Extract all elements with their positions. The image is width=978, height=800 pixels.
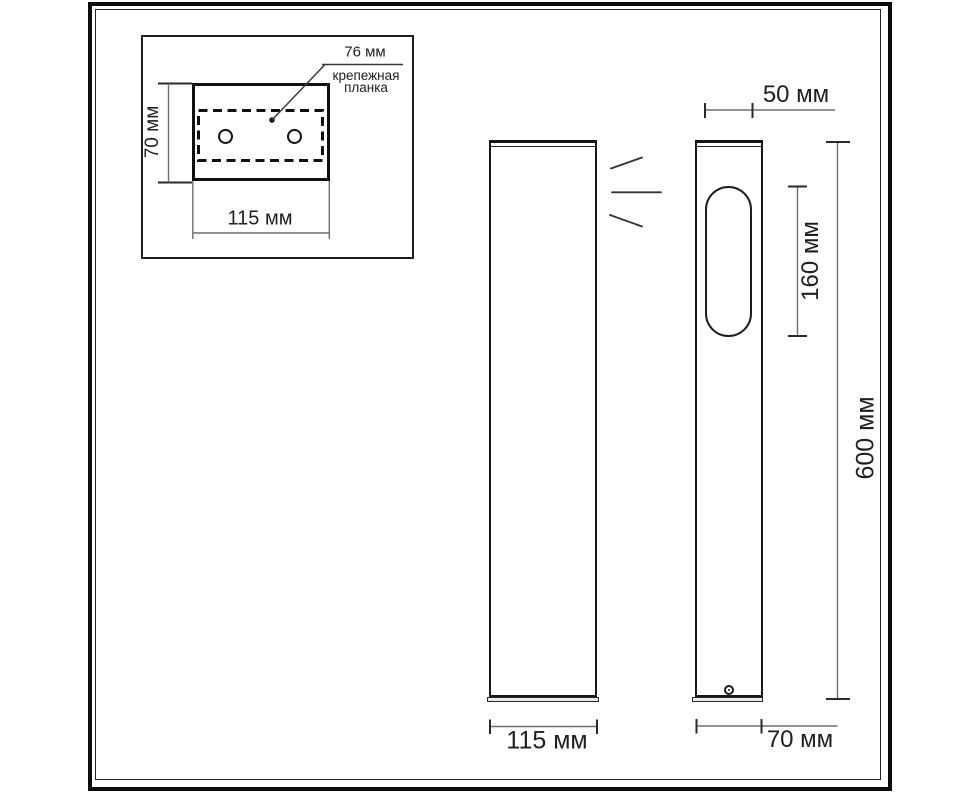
bracket-caption: крепежная планка <box>333 70 400 94</box>
light-ray-bottom <box>610 215 642 227</box>
side-depth-label: 70 мм <box>767 726 833 754</box>
head-depth-label: 50 мм <box>763 81 829 109</box>
bracket-caption-line2: планка <box>333 82 400 94</box>
dimensional-drawing: 76 мм крепежная планка 70 мм 115 мм 50 м… <box>0 0 978 800</box>
mounting-bracket-dashed-outline <box>199 111 323 161</box>
total-height-label: 600 мм <box>852 396 881 479</box>
front-width-label: 115 мм <box>506 727 587 756</box>
light-ray-top <box>611 158 642 169</box>
window-height-label: 160 мм <box>797 221 825 301</box>
inset-height-label: 70 мм <box>142 106 164 159</box>
inset-length-label: 115 мм <box>228 208 293 231</box>
plate-width-label: 76 мм <box>344 44 385 61</box>
